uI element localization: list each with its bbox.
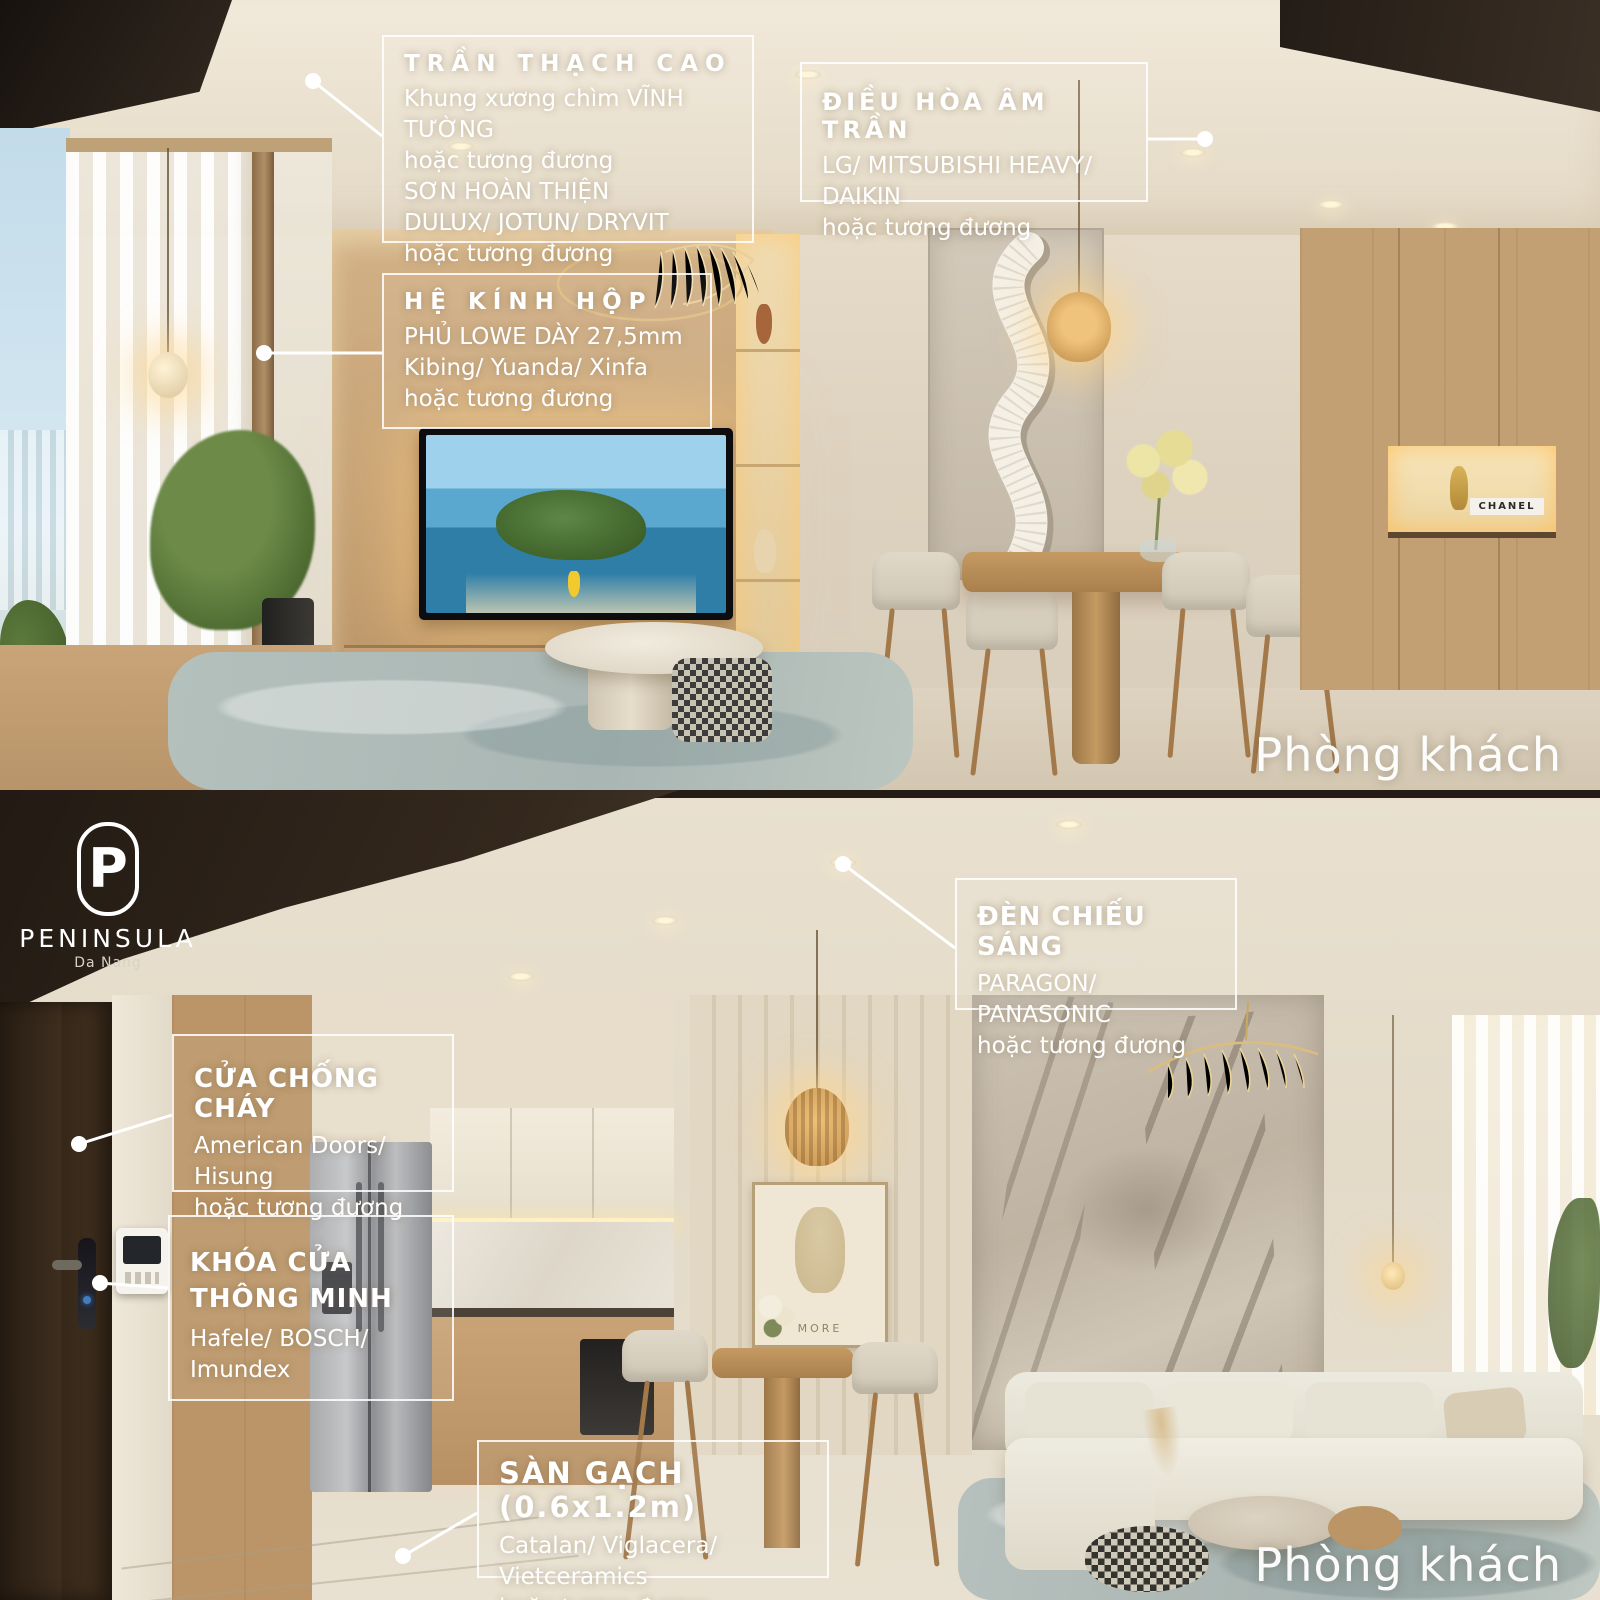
callout-line: DULUX/ JOTUN/ DRYVIT	[404, 208, 732, 239]
window-frame-head	[66, 138, 332, 152]
intercom-screen	[123, 1236, 161, 1264]
window-pendant-cord	[1392, 1015, 1394, 1265]
dining-pendant-lamp	[1047, 292, 1111, 362]
spiral-sculpture	[930, 230, 1102, 578]
nook-pendant-cord	[816, 930, 818, 1092]
intercom-buttons	[125, 1272, 159, 1284]
cabinet-niche	[1388, 446, 1556, 532]
area-rug	[168, 652, 913, 790]
kitchen-tall-cabinets	[1300, 228, 1600, 690]
callout-line: hoặc tương đương	[404, 146, 732, 177]
houndstooth-pouf	[1085, 1526, 1209, 1592]
downlight	[1180, 148, 1206, 157]
callout-dieu-hoa-am-tran: ĐIỀU HÒA ÂM TRẦN LG/ MITSUBISHI HEAVY/ D…	[800, 62, 1148, 202]
callout-line: LG/ MITSUBISHI HEAVY/ DAIKIN	[822, 151, 1126, 213]
callout-title: SÀN GẠCH (0.6x1.2m)	[499, 1456, 807, 1524]
tv-screen	[426, 435, 726, 613]
callout-line: Kibing/ Yuanda/ Xinfa	[404, 353, 690, 384]
downlight	[652, 916, 678, 925]
sofa-back-cushion	[1025, 1382, 1153, 1444]
nook-table-top	[712, 1348, 854, 1378]
shelf-line	[736, 579, 800, 582]
nook-flowers	[752, 1288, 798, 1350]
book-spine-label: CHANEL	[1478, 501, 1535, 512]
side-table-dark	[672, 658, 772, 742]
glass-vase	[1140, 540, 1176, 562]
upper-cabinets	[430, 1108, 674, 1221]
brand-name: PENINSULA	[18, 924, 198, 953]
brand-logo: P PENINSULA Da Nang	[18, 822, 198, 971]
counter-edge	[1388, 532, 1556, 538]
callout-san-gach: SÀN GẠCH (0.6x1.2m) Catalan/ Viglacera/ …	[477, 1440, 829, 1578]
sofa-back-cushion	[1165, 1382, 1293, 1444]
lock-keypad-light	[83, 1296, 91, 1304]
shelf-figurine	[754, 529, 776, 573]
book-spine: CHANEL	[1470, 498, 1544, 515]
niche-gold-vase	[1450, 466, 1468, 510]
downlight	[1318, 200, 1344, 209]
artwork-lamp-print	[795, 1207, 845, 1293]
callout-tran-thach-cao: TRẦN THẠCH CAO Khung xương chìm VĨNH TƯỜ…	[382, 35, 754, 243]
marble-backsplash	[430, 1222, 674, 1310]
room-label-bottom: Phòng khách	[1255, 1538, 1562, 1592]
callout-he-kinh-hop: HỆ KÍNH HỘP PHỦ LOWE DÀY 27,5mm Kibing/ …	[382, 273, 712, 429]
wall-strip	[112, 995, 172, 1600]
smart-door-lock	[78, 1238, 96, 1330]
dining-chair	[1162, 552, 1250, 610]
callout-line: hoặc tương đương	[404, 384, 690, 415]
callout-line: SƠN HOÀN THIỆN	[404, 177, 732, 208]
downlight	[508, 972, 534, 981]
sofa-back-cushion	[1305, 1382, 1433, 1444]
door-handle	[52, 1260, 82, 1270]
callout-line: hoặc tương đương	[499, 1593, 807, 1600]
callout-title: HỆ KÍNH HỘP	[404, 289, 690, 315]
callout-line: Catalan/ Viglacera/ Vietceramics	[499, 1531, 807, 1593]
downlight	[830, 858, 856, 867]
brochure-page: CHANEL TRẦN THẠCH CAO Khung xương chìm V…	[0, 0, 1600, 1600]
callout-line: American Doors/ Hisung	[194, 1131, 432, 1193]
tv-beach	[466, 573, 696, 613]
balcony-city-skyline	[0, 430, 66, 610]
callout-title: ĐÈN CHIẾU SÁNG	[977, 902, 1215, 962]
dining-chair	[872, 552, 960, 610]
brand-location: Da Nang	[18, 955, 198, 971]
callout-line: PHỦ LOWE DÀY 27,5mm	[404, 322, 690, 353]
room-label-top: Phòng khách	[1255, 728, 1562, 782]
callout-title: CỬA CHỐNG CHÁY	[194, 1064, 432, 1124]
callout-cua-chong-chay: CỬA CHỐNG CHÁY American Doors/ Hisung ho…	[172, 1034, 454, 1192]
callout-line: hoặc tương đương	[404, 239, 732, 270]
callout-title: KHÓA CỬA THÔNG MINH	[190, 1245, 432, 1317]
cabinet-seam	[592, 1108, 594, 1218]
callout-title: TRẦN THẠCH CAO	[404, 51, 732, 77]
dining-table-pedestal	[1072, 592, 1120, 764]
pendant-ball-lamp	[148, 352, 188, 398]
callout-line: PARAGON/ PANASONIC	[977, 969, 1215, 1031]
countertop	[430, 1308, 674, 1317]
tv-person-yellow-dress	[568, 571, 580, 597]
marble-blotch	[1062, 1145, 1232, 1275]
cabinet-seam	[510, 1108, 512, 1218]
callout-den-chieu-sang: ĐÈN CHIẾU SÁNG PARAGON/ PANASONIC hoặc t…	[955, 878, 1237, 1010]
flower-cluster	[1112, 428, 1216, 510]
dining-chair	[966, 588, 1058, 650]
pendant-cord	[167, 148, 169, 356]
nook-chair	[622, 1330, 708, 1382]
top-render-living-room: CHANEL TRẦN THẠCH CAO Khung xương chìm V…	[0, 0, 1600, 790]
downlight	[1056, 820, 1082, 829]
callout-line: Khung xương chìm VĨNH TƯỜNG	[404, 84, 732, 146]
callout-title: ĐIỀU HÒA ÂM TRẦN	[822, 88, 1126, 144]
logo-monogram-capsule: P	[77, 822, 139, 916]
shelf-line	[736, 464, 800, 467]
callout-line: Hafele/ BOSCH/ Imundex	[190, 1324, 432, 1386]
tv	[419, 428, 733, 620]
bottom-render-kitchen-living: P PENINSULA Da Nang	[0, 790, 1600, 1600]
window-pendant-lamp	[1381, 1262, 1405, 1290]
nook-chair	[852, 1342, 938, 1394]
logo-monogram: P	[81, 836, 135, 902]
tv-island	[496, 490, 646, 560]
video-intercom	[116, 1228, 168, 1294]
nook-pendant-lamp	[785, 1088, 849, 1166]
callout-line: hoặc tương đương	[822, 213, 1126, 244]
callout-khoa-cua-thong-minh: KHÓA CỬA THÔNG MINH Hafele/ BOSCH/ Imund…	[168, 1215, 454, 1401]
callout-line: hoặc tương đương	[977, 1031, 1215, 1062]
